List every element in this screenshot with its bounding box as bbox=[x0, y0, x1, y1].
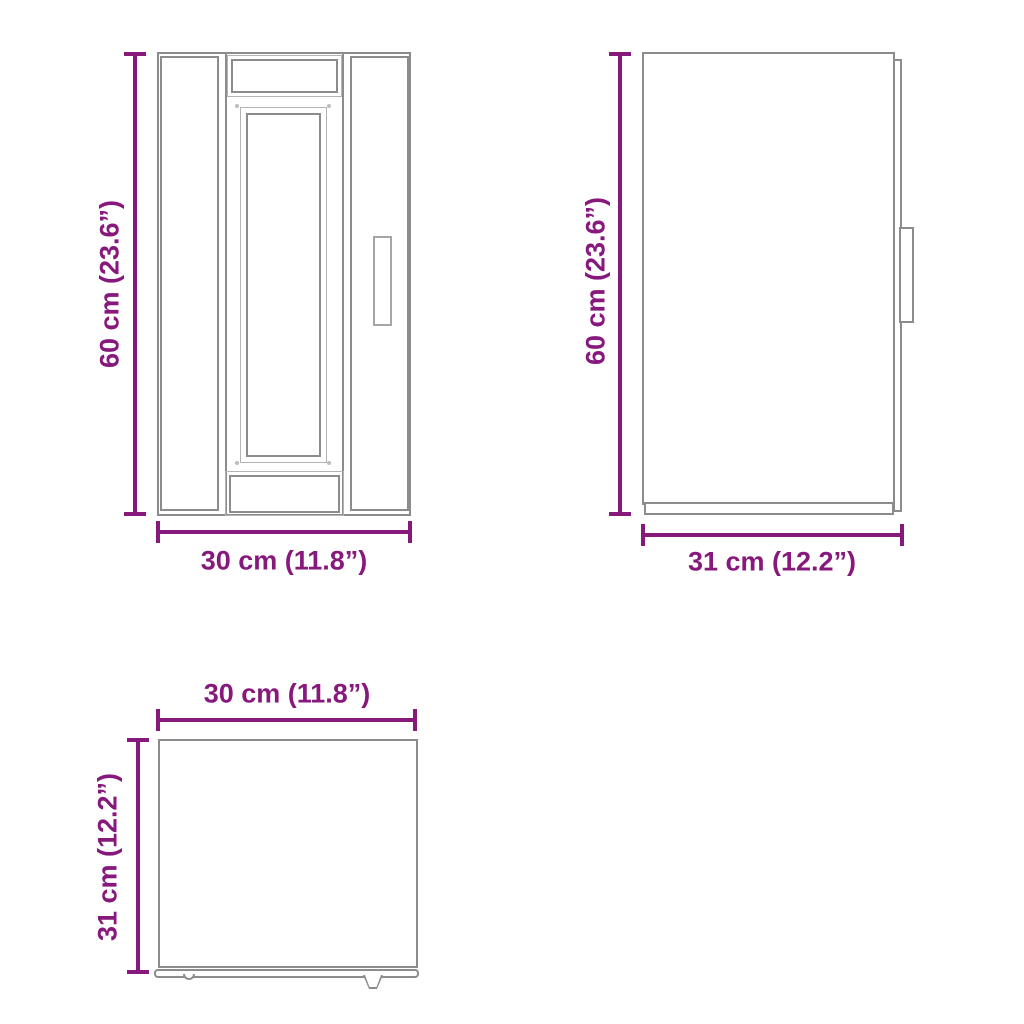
top-hinge-notch bbox=[183, 974, 195, 980]
door-bottom-rail-panel bbox=[229, 475, 340, 513]
top-width-dimension-line bbox=[156, 709, 417, 731]
top-door-handle bbox=[363, 975, 383, 989]
side-bottom-panel bbox=[644, 502, 894, 515]
front-width-dimension-label: 30 cm (11.8”) bbox=[201, 546, 368, 577]
dimension-bar bbox=[641, 533, 904, 537]
dimension-bar bbox=[136, 738, 140, 974]
top-depth-dimension-line bbox=[127, 738, 149, 974]
door-center-panel bbox=[246, 113, 321, 457]
dimension-tick bbox=[127, 970, 149, 974]
front-height-dimension-line bbox=[124, 52, 146, 516]
front-door-right-edge-line bbox=[342, 54, 344, 514]
top-width-dimension-label: 30 cm (11.8”) bbox=[204, 679, 371, 710]
side-depth-dimension-label: 31 cm (12.2”) bbox=[688, 547, 856, 578]
hinge-dot bbox=[327, 104, 331, 108]
side-door-handle bbox=[899, 227, 914, 323]
hinge-dot bbox=[235, 461, 239, 465]
dimension-tick bbox=[609, 512, 631, 516]
dimension-bar bbox=[156, 530, 412, 534]
dimension-bar bbox=[618, 52, 622, 516]
dimension-tick bbox=[900, 524, 904, 546]
dimension-tick bbox=[124, 512, 146, 516]
front-door-handle bbox=[373, 236, 392, 326]
hinge-dot bbox=[327, 461, 331, 465]
dimension-tick bbox=[408, 521, 412, 543]
side-height-dimension-label: 60 cm (23.6”) bbox=[581, 197, 612, 365]
top-depth-dimension-label: 31 cm (12.2”) bbox=[93, 773, 124, 941]
dimension-bar bbox=[133, 52, 137, 516]
front-height-dimension-label: 60 cm (23.6”) bbox=[95, 200, 126, 368]
side-depth-dimension-line bbox=[641, 524, 904, 546]
front-width-dimension-line bbox=[156, 521, 412, 543]
dimension-diagram: 60 cm (23.6”) 30 cm (11.8”) 60 cm (23.6”… bbox=[0, 0, 1024, 1024]
side-height-dimension-line bbox=[609, 52, 631, 516]
door-top-rail-panel bbox=[231, 59, 338, 93]
top-cabinet-outline bbox=[158, 739, 418, 968]
dimension-bar bbox=[156, 718, 417, 722]
front-door-left-edge-line bbox=[225, 54, 227, 514]
hinge-dot bbox=[235, 104, 239, 108]
top-door-handle-inner bbox=[365, 975, 381, 987]
dimension-tick bbox=[413, 709, 417, 731]
side-cabinet-outline bbox=[642, 52, 895, 505]
front-left-side-panel bbox=[160, 56, 219, 511]
